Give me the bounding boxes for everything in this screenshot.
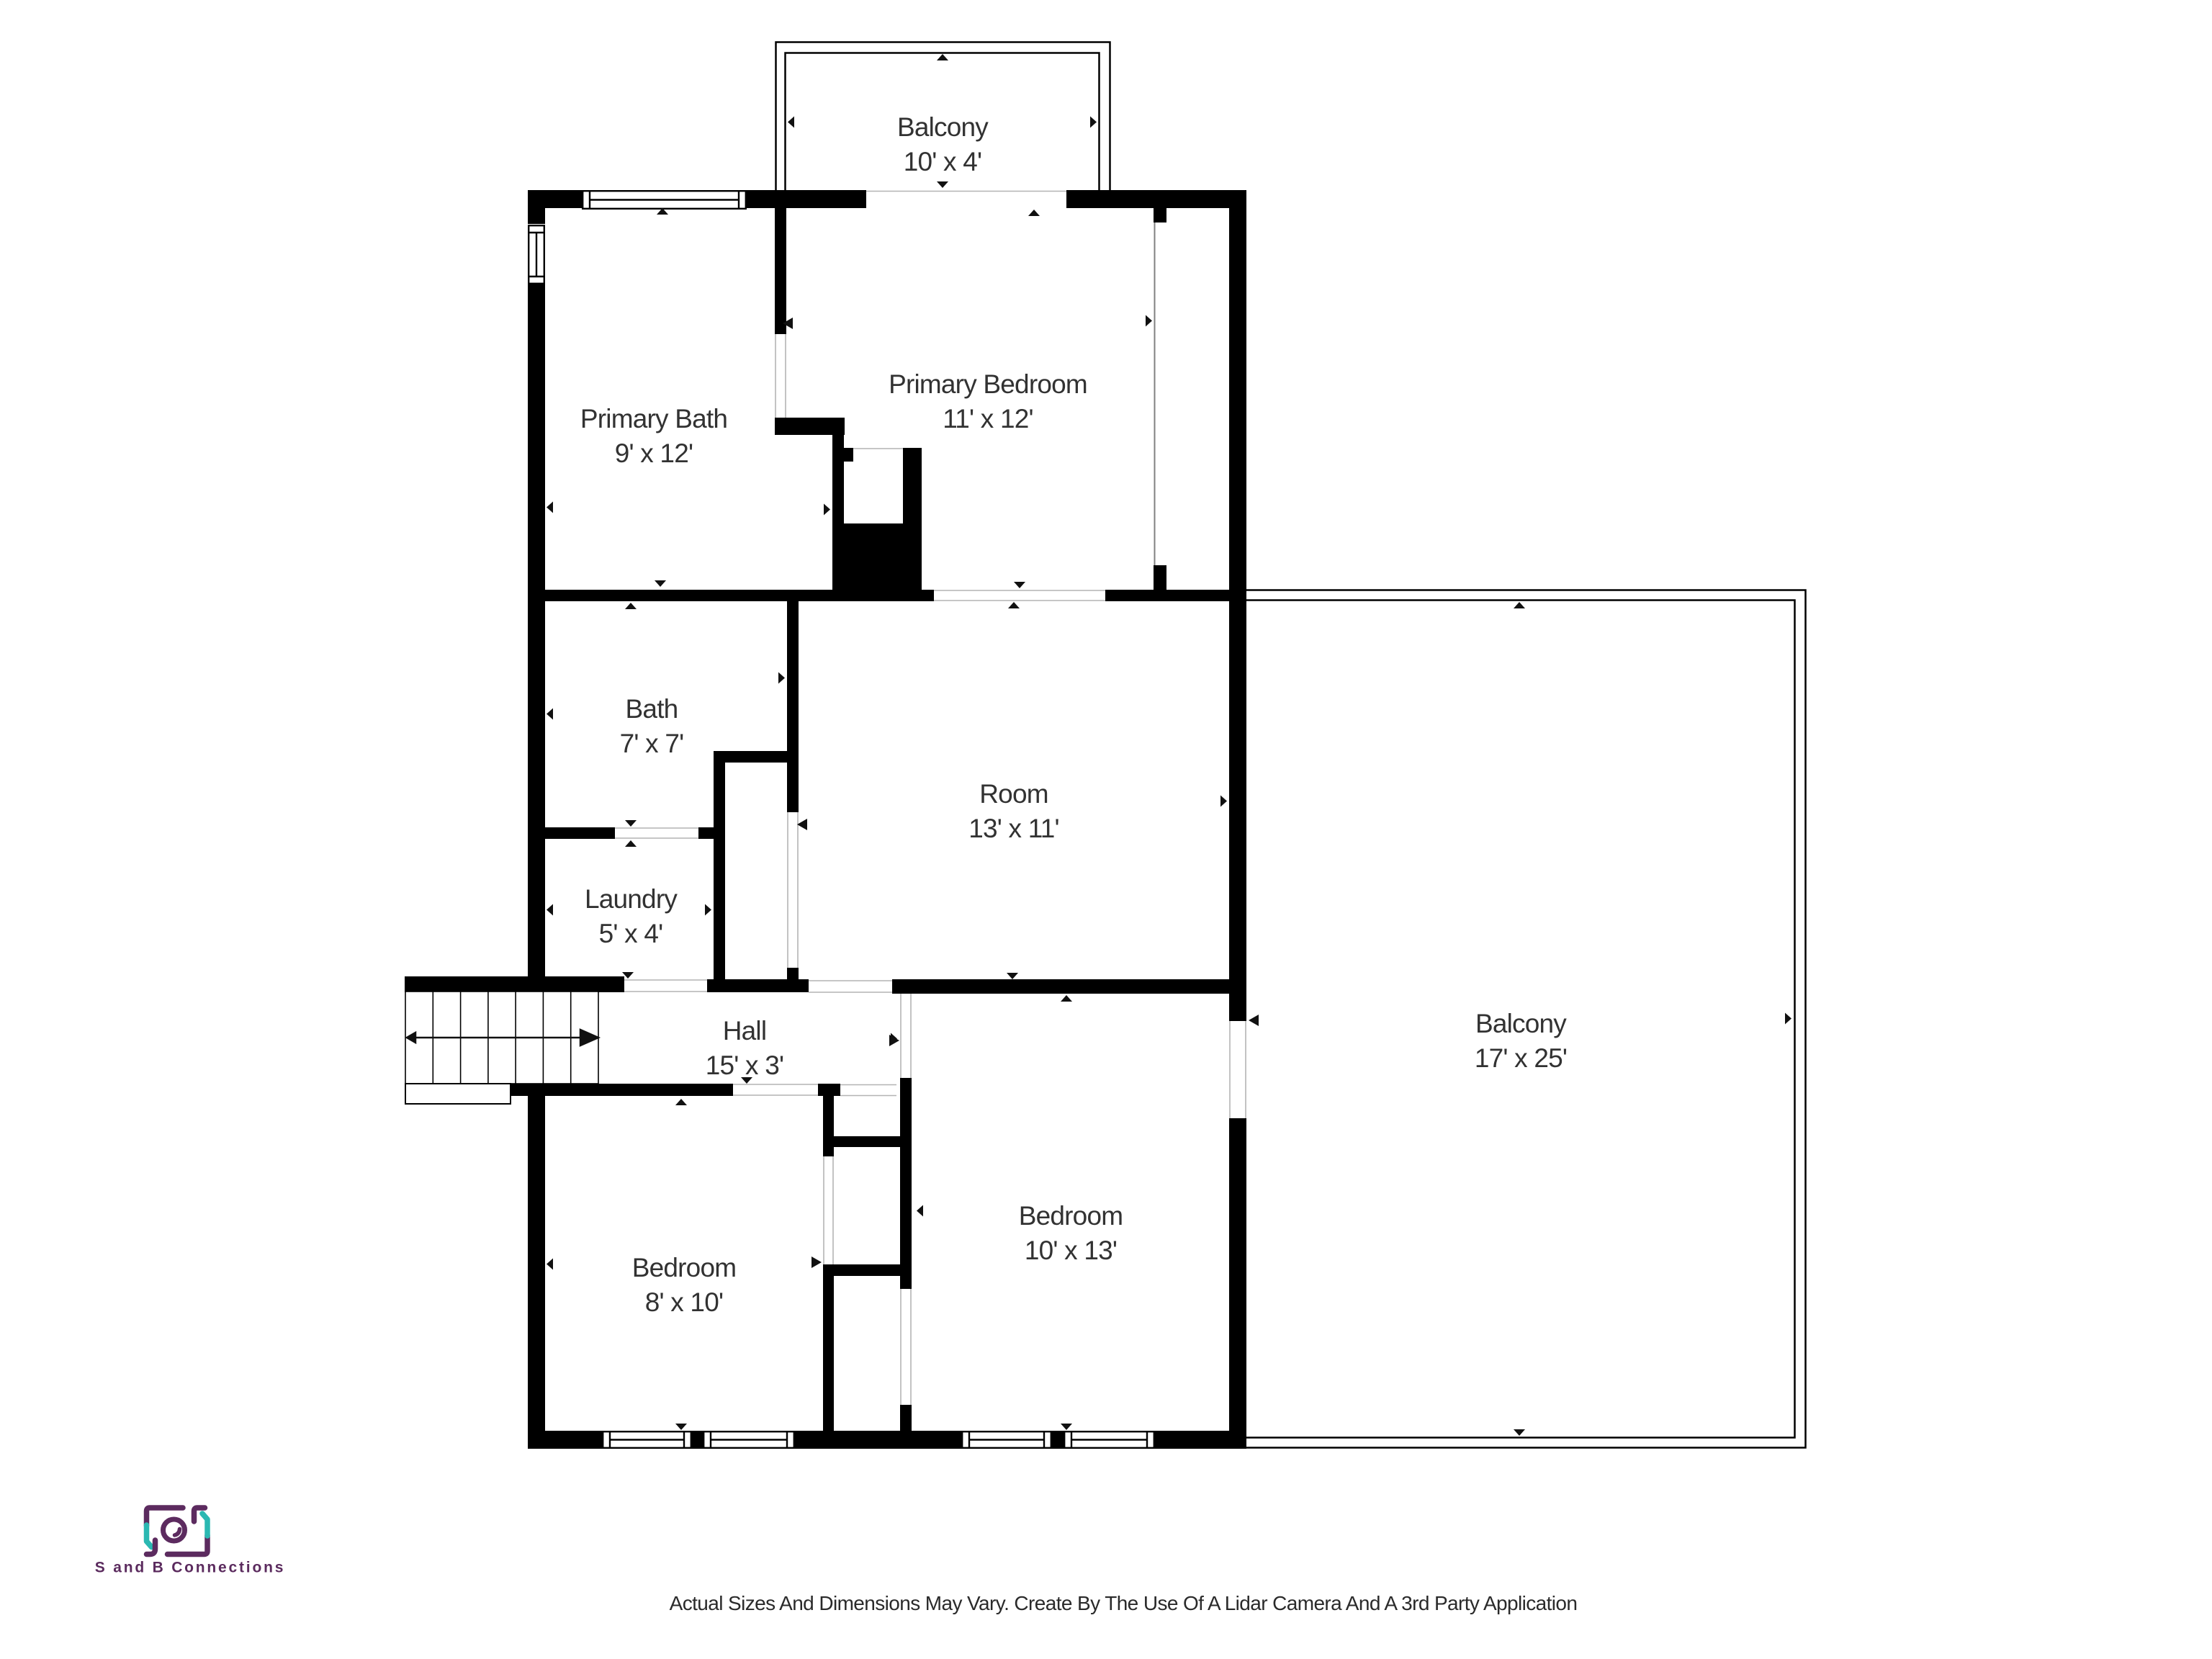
svg-text:8' x 10': 8' x 10' [645,1287,724,1317]
svg-text:Primary Bath: Primary Bath [580,404,727,433]
svg-text:10' x 4': 10' x 4' [904,147,982,176]
svg-text:9' x 12': 9' x 12' [615,439,693,468]
svg-text:15' x 3': 15' x 3' [706,1051,784,1080]
svg-text:7' x 7': 7' x 7' [620,729,684,758]
svg-text:Bath: Bath [626,694,678,724]
svg-text:10' x 13': 10' x 13' [1025,1236,1117,1265]
svg-text:Hall: Hall [723,1016,767,1046]
svg-text:11' x 12': 11' x 12' [943,404,1033,433]
svg-text:Bedroom: Bedroom [632,1253,737,1282]
svg-text:17' x 25': 17' x 25' [1475,1043,1567,1073]
svg-text:Bedroom: Bedroom [1019,1201,1123,1231]
svg-text:Balcony: Balcony [897,112,989,142]
svg-text:13' x 11': 13' x 11' [968,814,1059,843]
svg-text:Room: Room [979,779,1048,809]
svg-text:S and B Connections: S and B Connections [95,1560,285,1576]
svg-text:Laundry: Laundry [585,884,678,914]
svg-text:Actual Sizes And Dimensions Ma: Actual Sizes And Dimensions May Vary. Cr… [670,1592,1578,1614]
svg-text:5' x 4': 5' x 4' [599,919,663,948]
svg-text:Primary Bedroom: Primary Bedroom [889,369,1087,399]
svg-text:Balcony: Balcony [1475,1009,1567,1038]
